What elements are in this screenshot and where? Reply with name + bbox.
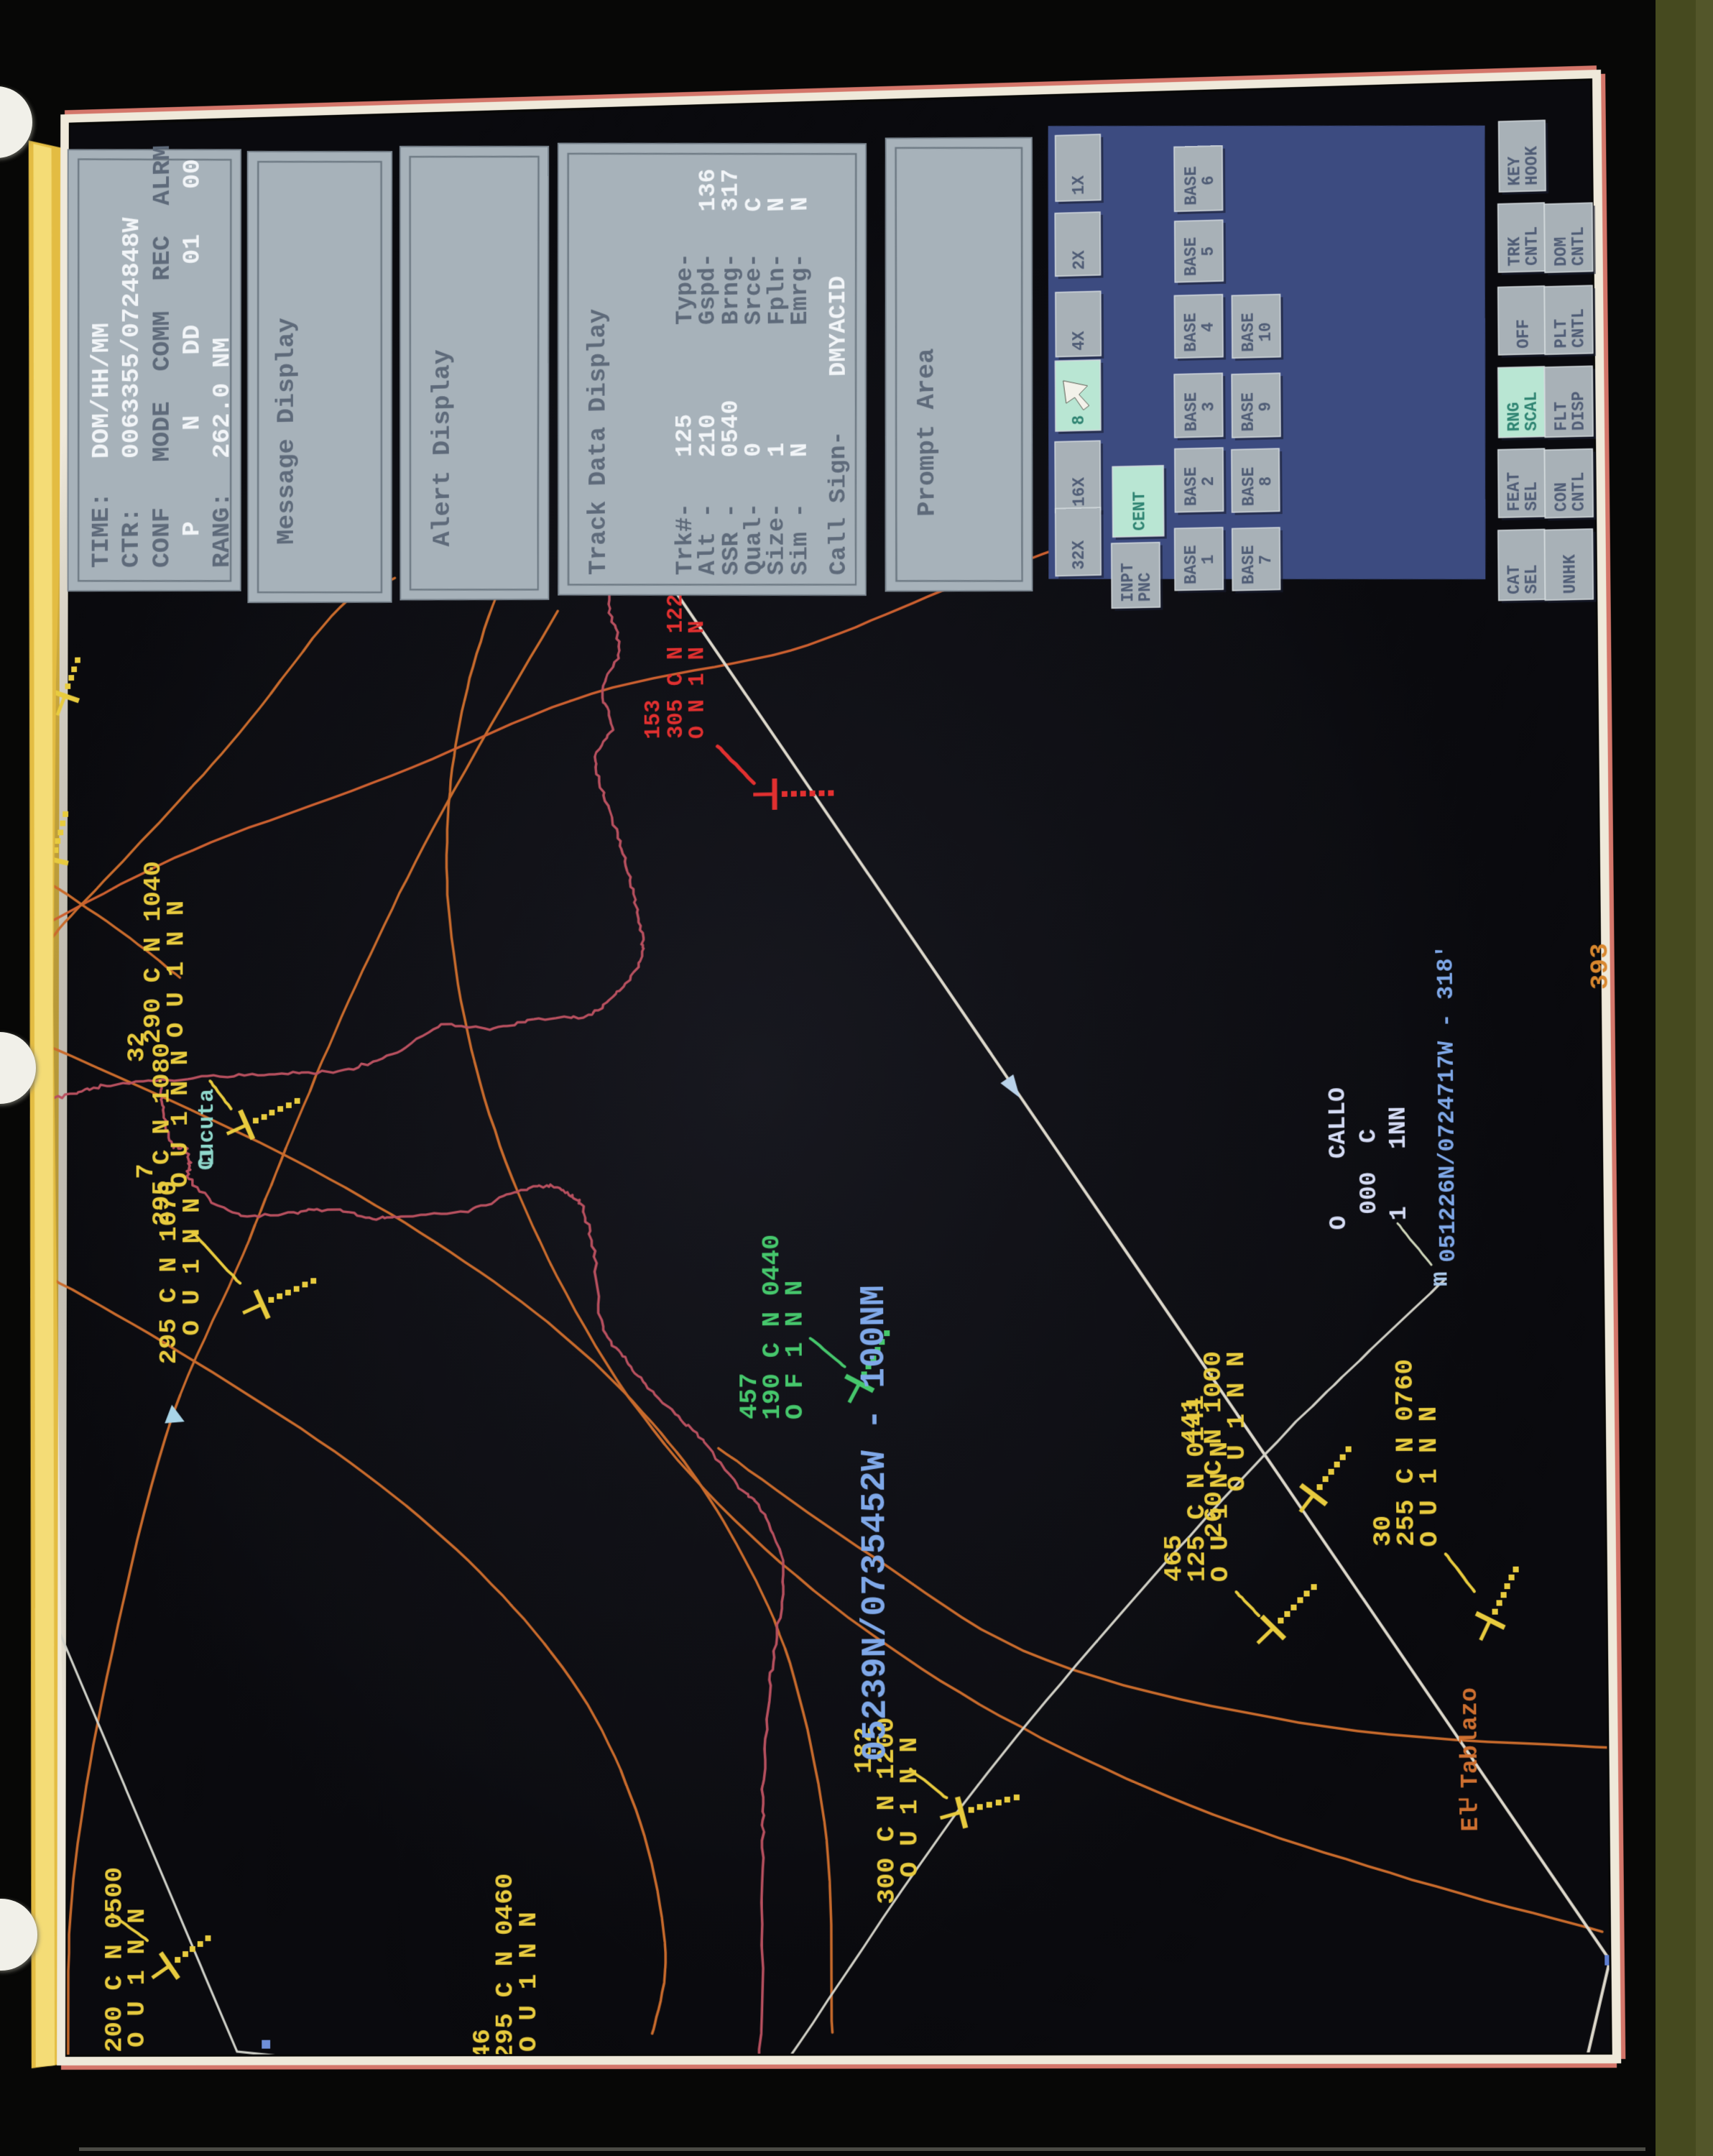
- svg-text:2X: 2X: [1070, 250, 1089, 270]
- svg-text:OFF: OFF: [1514, 319, 1533, 349]
- svg-text:Message Display: Message Display: [272, 317, 301, 545]
- svg-text:CONF MODE COMM REC ALRM: CONF MODE COMM REC ALRM: [148, 144, 177, 568]
- svg-text:PNC: PNC: [1136, 572, 1155, 602]
- svg-text:P N DD 01 00: P N DD 01 00: [178, 158, 207, 536]
- svg-text:RNG: RNG: [1505, 402, 1524, 432]
- svg-text:Track Data Display: Track Data Display: [584, 308, 613, 575]
- svg-text:BASE: BASE: [1182, 466, 1201, 506]
- svg-text:7: 7: [131, 1164, 160, 1179]
- svg-text:CENT: CENT: [1130, 492, 1150, 531]
- svg-text:HOOK: HOOK: [1523, 145, 1542, 185]
- svg-text:O F 1 N N: O F 1 N N: [780, 1280, 810, 1419]
- svg-text:SCAL: SCAL: [1522, 392, 1541, 431]
- svg-text:SEL: SEL: [1522, 482, 1541, 512]
- svg-text:Call Sign-: Call Sign-: [825, 430, 853, 576]
- svg-text:UNHK: UNHK: [1561, 554, 1580, 594]
- svg-text:BASE: BASE: [1239, 392, 1258, 432]
- svg-text:SEL: SEL: [1522, 564, 1541, 594]
- svg-text:PLT: PLT: [1551, 318, 1571, 349]
- svg-text:6: 6: [1199, 175, 1219, 205]
- svg-text:393: 393: [1585, 943, 1615, 990]
- svg-text:INPT: INPT: [1119, 563, 1138, 602]
- svg-text:CNTL: CNTL: [1523, 226, 1542, 266]
- svg-text:N: N: [787, 196, 814, 211]
- svg-text:BASE: BASE: [1182, 392, 1201, 432]
- svg-text:O U 1 N N: O U 1 N N: [177, 1197, 206, 1335]
- svg-text:O U 1 N N: O U 1 N N: [514, 1912, 544, 2052]
- svg-text:CNTL: CNTL: [1569, 471, 1589, 512]
- svg-text:BASE: BASE: [1182, 236, 1201, 276]
- svg-text:O CALLO: O CALLO: [1324, 1087, 1353, 1230]
- svg-text:Sim -: Sim -: [787, 503, 815, 576]
- svg-text:KEY: KEY: [1505, 156, 1525, 186]
- svg-text:O U 1 N N: O U 1 N N: [123, 1908, 152, 2047]
- svg-text:CTR:: CTR:: [117, 461, 146, 568]
- svg-text:10: 10: [1256, 322, 1275, 352]
- svg-text:O U 1 N N: O U 1 N N: [1222, 1351, 1252, 1492]
- svg-text:CON: CON: [1552, 482, 1571, 512]
- svg-text:262.0 NM: 262.0 NM: [208, 337, 236, 459]
- svg-text:TIME:: TIME:: [87, 461, 116, 568]
- svg-text:051226N/0724717W - 318': 051226N/0724717W - 318': [1433, 944, 1462, 1263]
- svg-text:Alert Display: Alert Display: [428, 349, 457, 548]
- svg-text:2: 2: [1199, 476, 1219, 506]
- svg-text:05239N/0735452W - 100NM: 05239N/0735452W - 100NM: [855, 1285, 896, 1761]
- svg-text:DISP: DISP: [1569, 391, 1589, 430]
- svg-text:Prompt Area: Prompt Area: [912, 348, 942, 517]
- svg-text:DOM/HH/MM: DOM/HH/MM: [88, 323, 116, 459]
- svg-text:16X: 16X: [1070, 476, 1089, 507]
- svg-text:BASE: BASE: [1239, 313, 1258, 352]
- svg-text:Emrg-: Emrg-: [786, 253, 814, 326]
- svg-text:32X: 32X: [1070, 540, 1089, 570]
- svg-text:1 1NN: 1 1NN: [1385, 1106, 1413, 1220]
- svg-text:CAT: CAT: [1505, 565, 1524, 595]
- svg-text:FLT: FLT: [1552, 401, 1571, 431]
- svg-text:BASE: BASE: [1181, 545, 1201, 584]
- svg-text:N: N: [786, 443, 813, 458]
- svg-text:153: 153: [642, 699, 666, 740]
- svg-text:9: 9: [1256, 402, 1275, 432]
- svg-text:RANG:: RANG:: [208, 461, 236, 568]
- svg-text:CNTL: CNTL: [1569, 308, 1589, 348]
- svg-text:3: 3: [1199, 402, 1219, 432]
- svg-text:El Tablazo: El Tablazo: [1456, 1687, 1485, 1832]
- svg-text:BASE: BASE: [1182, 166, 1201, 206]
- svg-text:4: 4: [1199, 322, 1218, 352]
- svg-text:BASE: BASE: [1239, 466, 1259, 506]
- svg-text:O U 1 N N: O U 1 N N: [166, 1050, 195, 1188]
- svg-text:TRK: TRK: [1505, 236, 1525, 267]
- svg-text:8: 8: [1070, 415, 1089, 425]
- svg-text:O U 1 N N: O U 1 N N: [1414, 1406, 1445, 1547]
- svg-text:O U 1 N N: O U 1 N N: [895, 1737, 925, 1878]
- svg-text:CNTL: CNTL: [1569, 226, 1588, 266]
- svg-text:1: 1: [1199, 554, 1219, 584]
- svg-text:0063355/0724848W: 0063355/0724848W: [117, 216, 146, 459]
- svg-text:1X: 1X: [1069, 175, 1089, 195]
- svg-text:O U 1 N N: O U 1 N N: [162, 900, 190, 1038]
- svg-text:m: m: [1426, 1271, 1454, 1286]
- svg-text:DMYACID: DMYACID: [825, 275, 853, 377]
- svg-text:4X: 4X: [1070, 331, 1089, 351]
- svg-text:O N 1 N N: O N 1 N N: [685, 620, 711, 740]
- svg-text:BASE: BASE: [1181, 313, 1201, 352]
- svg-text:Cucuta: Cucuta: [195, 1088, 220, 1170]
- svg-text:7: 7: [1257, 554, 1276, 584]
- svg-text:BASE: BASE: [1239, 545, 1259, 584]
- svg-text:000 C: 000 C: [1355, 1128, 1383, 1215]
- svg-text:FEAT: FEAT: [1505, 472, 1524, 512]
- svg-text:DOM: DOM: [1551, 236, 1571, 267]
- svg-text:5: 5: [1199, 246, 1219, 276]
- svg-text:8: 8: [1257, 476, 1276, 506]
